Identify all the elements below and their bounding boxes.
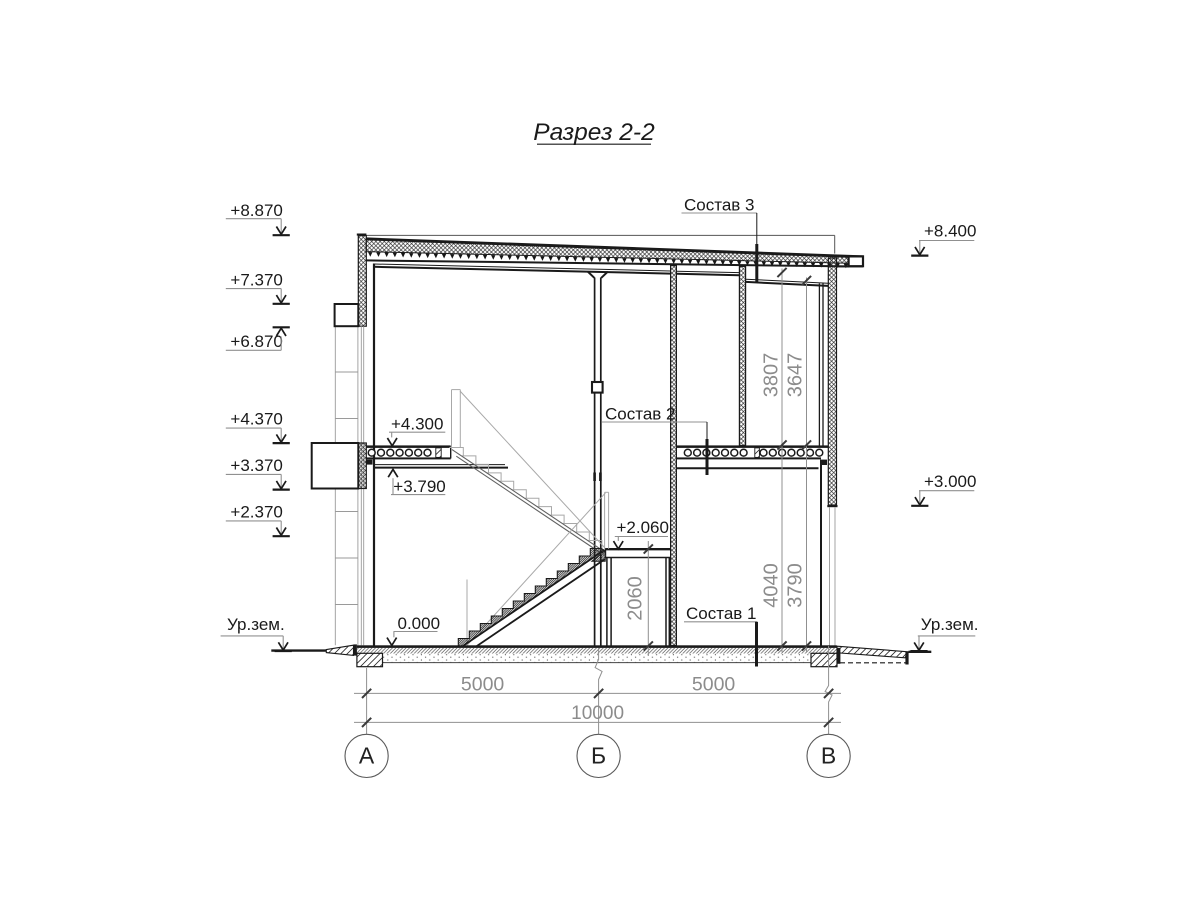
- svg-text:+3.370: +3.370: [230, 456, 282, 475]
- svg-text:+3.790: +3.790: [393, 477, 445, 496]
- svg-text:3790: 3790: [785, 563, 807, 608]
- svg-text:В: В: [821, 743, 836, 769]
- svg-text:+7.370: +7.370: [230, 271, 282, 290]
- svg-text:Состав 3: Состав 3: [684, 195, 755, 214]
- svg-text:5000: 5000: [692, 674, 736, 696]
- svg-text:+2.370: +2.370: [230, 502, 282, 521]
- svg-text:+4.370: +4.370: [230, 410, 282, 429]
- svg-text:2060: 2060: [625, 576, 647, 621]
- svg-text:10000: 10000: [571, 703, 624, 724]
- svg-text:Разрез 2-2: Разрез 2-2: [533, 119, 655, 146]
- svg-text:+3.000: +3.000: [924, 472, 976, 491]
- svg-text:Ур.зем.: Ур.зем.: [921, 615, 979, 634]
- svg-text:3807: 3807: [761, 353, 783, 398]
- svg-text:+4.300: +4.300: [391, 415, 443, 434]
- svg-text:Состав 1: Состав 1: [686, 604, 757, 623]
- svg-text:Б: Б: [591, 743, 606, 769]
- svg-text:+8.400: +8.400: [924, 222, 976, 241]
- svg-text:3647: 3647: [785, 353, 807, 398]
- svg-text:5000: 5000: [461, 674, 505, 696]
- svg-text:Состав 2: Состав 2: [605, 404, 676, 423]
- svg-text:4040: 4040: [761, 563, 783, 608]
- svg-text:+2.060: +2.060: [617, 518, 669, 537]
- svg-text:+8.870: +8.870: [230, 201, 282, 220]
- svg-text:А: А: [359, 743, 375, 769]
- svg-text:Ур.зем.: Ур.зем.: [227, 615, 285, 634]
- svg-text:+6.870: +6.870: [230, 332, 282, 351]
- svg-text:0.000: 0.000: [398, 614, 441, 633]
